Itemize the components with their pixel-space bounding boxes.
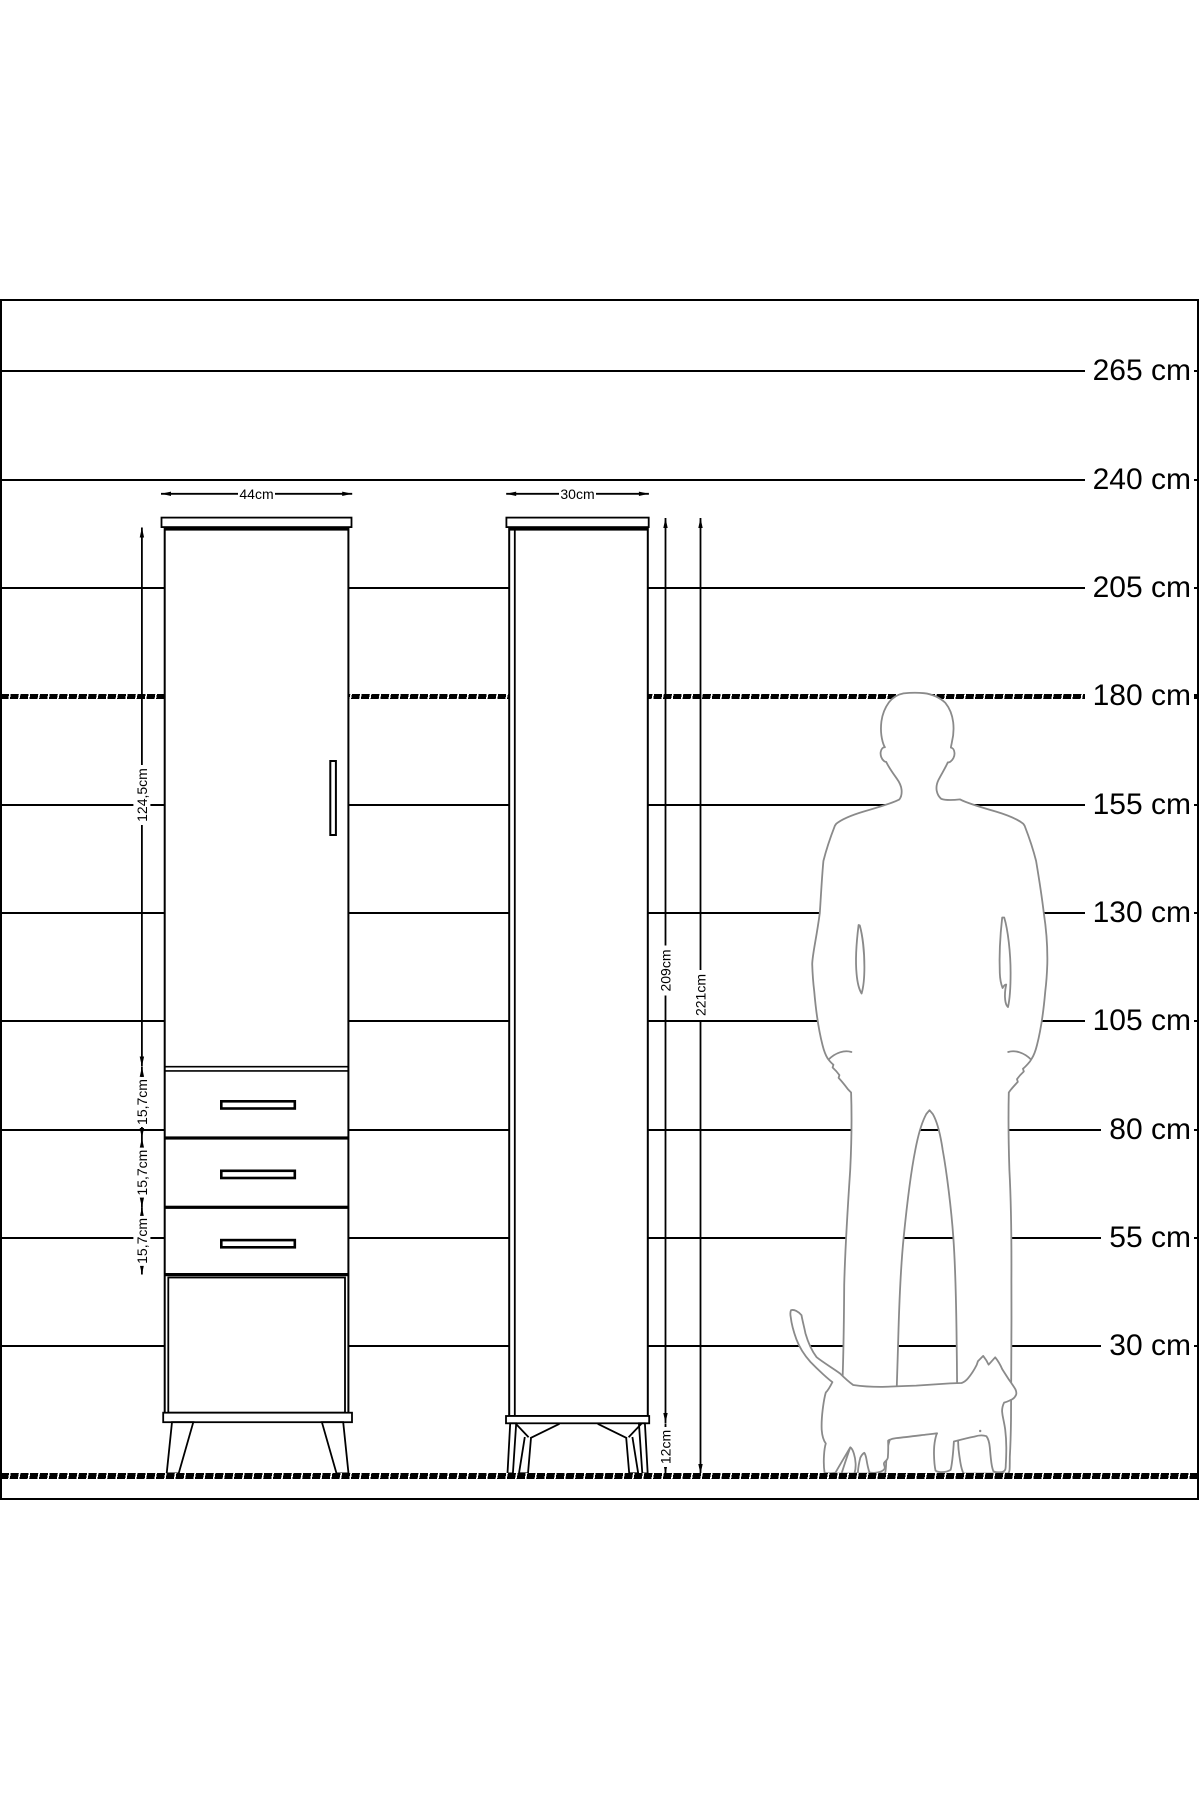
svg-text:124,5cm: 124,5cm	[134, 768, 150, 822]
svg-text:44cm: 44cm	[239, 486, 273, 502]
svg-text:15,7cm: 15,7cm	[134, 1150, 150, 1196]
svg-text:12cm: 12cm	[658, 1430, 674, 1464]
svg-text:15,7cm: 15,7cm	[134, 1218, 150, 1264]
svg-text:30cm: 30cm	[560, 486, 594, 502]
svg-text:221cm: 221cm	[693, 974, 709, 1016]
svg-text:15,7cm: 15,7cm	[134, 1079, 150, 1125]
svg-text:209cm: 209cm	[658, 949, 674, 991]
